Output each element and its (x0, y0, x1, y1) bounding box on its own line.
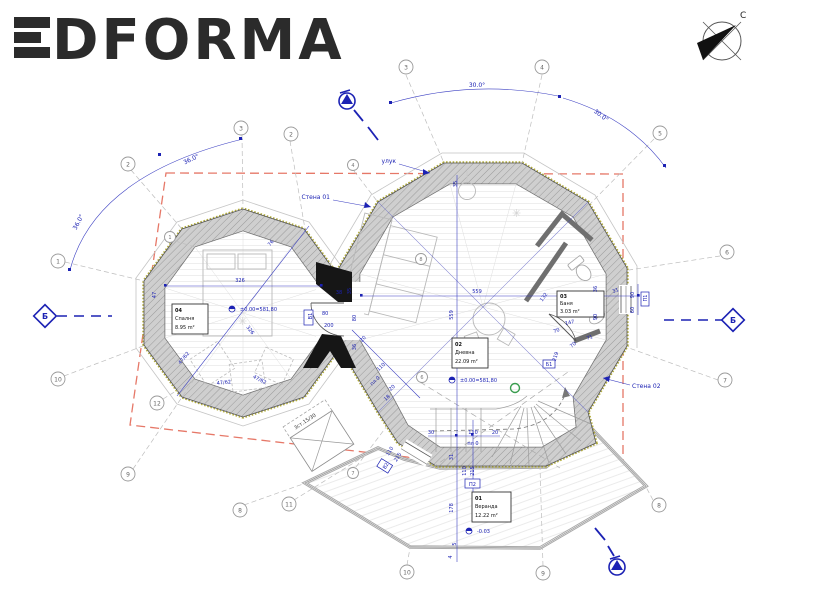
grid-bubble: 5 (653, 126, 667, 140)
section-marker-label: Б (730, 316, 736, 325)
grid-bubble: 11 (282, 497, 296, 511)
svg-text:22.09 m²: 22.09 m² (455, 359, 478, 365)
svg-text:6: 6 (420, 375, 423, 381)
compass-rose-icon: С (697, 11, 746, 60)
grid-bubble: 4 (535, 60, 549, 74)
svg-text:03: 03 (560, 294, 567, 300)
grid-bubble: 6 (720, 245, 734, 259)
grid-bubble: 8 (416, 254, 427, 265)
grid-bubble: 9 (536, 566, 550, 580)
wall01-label: Стена 01 (301, 194, 330, 201)
exterior-steps: 3ст.15/30 (283, 400, 354, 472)
dim-178: 178 (449, 503, 455, 513)
note-floor0: пл 0 (467, 441, 478, 447)
win2-tag: П2 (469, 482, 476, 488)
svg-text:04: 04 (175, 308, 182, 314)
grid-bubble: 7 (718, 373, 732, 387)
dim-90: 90 (630, 292, 636, 298)
svg-text:9: 9 (126, 472, 130, 479)
dim-38: 38 (336, 290, 342, 296)
floor-plan-drawing: DFORMA С 3ст.15/30 (0, 0, 822, 595)
svg-text:6: 6 (725, 250, 729, 257)
svg-text:10: 10 (403, 570, 411, 577)
svg-text:7: 7 (351, 471, 354, 477)
svg-text:8: 8 (238, 508, 242, 515)
light-symbol-icon: ✳ (512, 207, 521, 220)
svg-text:1: 1 (56, 259, 60, 266)
angle-30-label: 30.0° (592, 108, 609, 124)
dim-559: 559 (472, 289, 482, 295)
floor-plan-page: DFORMA С 3ст.15/30 (0, 0, 822, 595)
gutter-label: улук (381, 158, 396, 165)
svg-text:10: 10 (54, 377, 62, 384)
win1-tag: П1 (643, 295, 649, 302)
grid-bubble: 8 (233, 503, 247, 517)
section-marker-left: Б (34, 305, 57, 328)
level-value: -0.03 (477, 529, 490, 535)
dim-31: 31 (449, 454, 455, 460)
dim-215: 215 (470, 466, 476, 476)
grid-bubble: 7 (348, 468, 359, 479)
dim-326: 326 (235, 278, 245, 284)
dim-30: 30 (428, 430, 434, 436)
grid-bubble: 4 (348, 160, 359, 171)
section-marker-label: Б (42, 312, 48, 321)
svg-text:3.03 m²: 3.03 m² (560, 309, 580, 315)
svg-text:3: 3 (239, 126, 243, 133)
grid-bubble: 8 (652, 498, 666, 512)
svg-text:01: 01 (475, 496, 482, 502)
room-label-bath: 03 Баня 3.03 m² (557, 291, 604, 317)
svg-text:3: 3 (404, 65, 408, 72)
svg-text:2: 2 (126, 162, 130, 169)
level-value: ±0.00=581,80 (460, 378, 497, 384)
dim-35: 35 (347, 288, 353, 294)
svg-text:1: 1 (168, 235, 171, 241)
svg-text:Спалня: Спалня (175, 316, 194, 322)
dim-200: 200 (324, 323, 334, 329)
svg-text:8: 8 (419, 257, 422, 263)
compass-north-label: С (740, 11, 746, 21)
grid-bubble: 3 (234, 121, 248, 135)
svg-text:7: 7 (723, 378, 727, 385)
svg-text:Баня: Баня (560, 301, 573, 307)
logo-text: DFORMA (52, 8, 345, 73)
svg-text:12.22 m²: 12.22 m² (475, 513, 498, 519)
svg-text:4: 4 (351, 163, 354, 169)
wall02-label: Стена 02 (632, 383, 661, 390)
dim-60: 60 (630, 307, 636, 313)
dim-47: 47 (152, 292, 158, 298)
grid-bubble: 2 (121, 157, 135, 171)
svg-text:8.95 m²: 8.95 m² (175, 325, 195, 331)
grid-bubble: 9 (121, 467, 135, 481)
svg-text:9: 9 (541, 571, 545, 578)
dim-36: 36 (352, 344, 358, 350)
section-flag-top (339, 90, 378, 140)
dim-90: 90 (593, 314, 599, 320)
grid-bubble: 1 (165, 232, 176, 243)
door1-tag: В1 (308, 313, 314, 320)
grid-bubble: 10 (51, 372, 65, 386)
grid-bubble: 6 (417, 372, 428, 383)
dim-35: 35 (453, 181, 459, 187)
svg-text:12: 12 (153, 401, 161, 408)
light-symbol-icon: ✳ (238, 315, 247, 328)
dforma-logo: DFORMA (14, 8, 345, 73)
grid-bubble: 1 (51, 254, 65, 268)
level-value: ±0.00=581,80 (240, 307, 277, 313)
dim-80: 80 (352, 315, 358, 321)
dim-36: 36 (593, 286, 599, 292)
grid-bubble: 10 (400, 565, 414, 579)
logo-mark-icon (14, 17, 50, 58)
angle-36-label: 36.0° (72, 213, 86, 231)
dim-110: 110 (462, 466, 468, 476)
dim-80: 80 (322, 311, 328, 317)
dim-559: 559 (449, 310, 455, 320)
grid-bubble: 2 (284, 127, 298, 141)
section-marker-right: Б (722, 309, 745, 332)
dim-5: 5 (452, 542, 458, 545)
svg-text:2: 2 (289, 132, 293, 139)
svg-text:Веранда: Веранда (475, 504, 498, 510)
grid-bubble: 3 (399, 60, 413, 74)
room-label-living: 02 Дневна 22.09 m² (452, 338, 488, 368)
svg-text:02: 02 (455, 342, 462, 348)
dim-20: 20 (492, 430, 498, 436)
svg-text:4: 4 (540, 65, 544, 72)
grid-bubble: 12 (150, 396, 164, 410)
svg-text:11: 11 (285, 502, 293, 509)
angle-36-label: 36.0° (182, 153, 200, 166)
room-label-bedroom: 04 Спалня 8.95 m² (172, 304, 208, 334)
b1-tag: Б1 (546, 362, 553, 368)
svg-text:5: 5 (658, 131, 662, 138)
dim-4: 4 (448, 555, 454, 558)
angle-30-label: 30.0° (469, 82, 485, 89)
section-flag-bottom (595, 528, 625, 575)
svg-text:Дневна: Дневна (455, 350, 475, 356)
svg-text:8: 8 (657, 503, 661, 510)
dim-110: 110 (468, 430, 478, 436)
room-label-veranda: 01 Веранда 12.22 m² (472, 492, 511, 522)
